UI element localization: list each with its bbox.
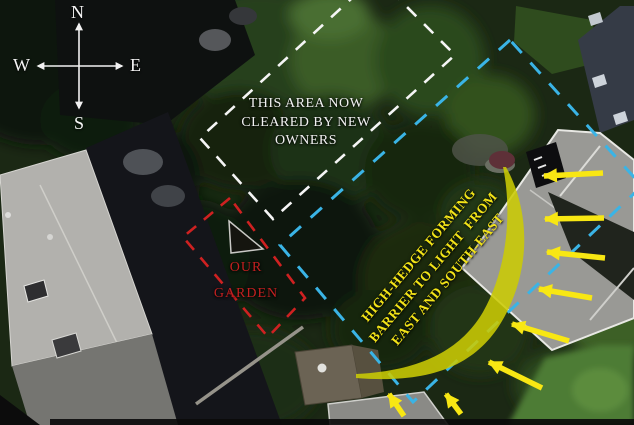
cleared-area-label: THIS AREA NOW CLEARED BY NEW OWNERS [228, 95, 384, 151]
sunlight-arrow-8 [446, 394, 461, 414]
cleared-area-line-2: CLEARED BY NEW [228, 114, 384, 133]
sunlight-arrow-2 [545, 218, 604, 219]
sunlight-arrow-6 [489, 362, 542, 388]
cleared-area-line-3: OWNERS [228, 132, 384, 151]
our-garden-line-2: GARDEN [194, 281, 298, 307]
annotation-overlay [0, 0, 634, 425]
sunlight-arrow-7 [389, 394, 404, 416]
our-garden-line-1: OUR [194, 255, 298, 281]
compass-west-label: W [13, 55, 30, 76]
our-garden-label: OUR GARDEN [194, 255, 298, 307]
cleared-area-line-1: THIS AREA NOW [228, 95, 384, 114]
sunlight-arrow-4 [539, 289, 592, 298]
compass-rose [38, 24, 122, 108]
sunlight-arrow-5 [512, 324, 569, 341]
sunlight-arrow-1 [544, 173, 603, 176]
annotated-aerial-photo: N W E S THIS AREA NOW CLEARED BY NEW OWN… [0, 0, 634, 425]
compass-east-label: E [130, 55, 141, 76]
sunlight-arrow-3 [547, 252, 605, 258]
compass-south-label: S [74, 113, 84, 134]
compass-north-label: N [71, 2, 84, 23]
